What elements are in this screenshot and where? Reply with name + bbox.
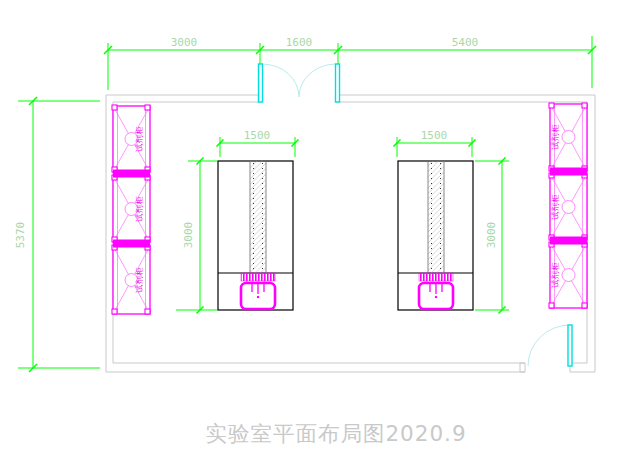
bench-hatched-channel (428, 161, 444, 273)
sink-right (419, 273, 453, 309)
lab-bench-right (398, 161, 473, 310)
cabinet-divider-bar (113, 240, 150, 248)
cabinet-divider-bar (113, 170, 150, 178)
cabinet-cell: 试剂柜 (549, 103, 587, 171)
door-leaf (259, 64, 263, 102)
double-door-top (259, 64, 340, 102)
dim-top-3000-label: 3000 (171, 36, 198, 49)
cabinet-label: 试剂柜 (135, 267, 144, 293)
door-leaf (336, 64, 340, 102)
dim-bench-depth-label: 3000 (485, 222, 498, 249)
cabinet-cell: 试剂柜 (549, 242, 587, 308)
cabinet-label: 试剂柜 (135, 196, 144, 222)
dim-bench-depth-label: 3000 (182, 222, 195, 249)
door-leaf (568, 325, 572, 366)
cabinet-cell: 试剂柜 (112, 175, 150, 242)
lab-bench-left (218, 161, 293, 310)
dim-top-1600-label: 1600 (286, 36, 313, 49)
cabinet-label: 试剂柜 (551, 194, 560, 220)
dimension-top-chain: 3000 1600 5400 (104, 36, 596, 90)
cabinet-divider-bar (550, 237, 587, 245)
cabinet-cell: 试剂柜 (549, 173, 587, 240)
dim-bench-width-label: 1500 (421, 129, 448, 142)
cabinet-divider-bar (550, 168, 587, 176)
cabinet-cell: 试剂柜 (112, 245, 150, 314)
floor-plan-drawing: 试剂柜 试剂柜 试剂柜 (0, 0, 619, 469)
room-walls (106, 95, 595, 372)
sink-left (241, 273, 275, 309)
dim-bench-width-label: 1500 (244, 129, 271, 142)
dim-room-height-label: 5370 (14, 222, 27, 249)
cabinet-cell: 试剂柜 (112, 105, 150, 172)
bench-hatched-channel (250, 161, 266, 273)
sink-drain-grate (419, 273, 453, 281)
dim-top-5400-label: 5400 (452, 36, 479, 49)
reagent-cabinet-column-left: 试剂柜 试剂柜 试剂柜 (112, 105, 150, 314)
dimension-left-wall: 5370 (14, 97, 100, 372)
drawing-title: 实验室平面布局图2020.9 (205, 421, 466, 446)
door-bottom-right (528, 325, 572, 366)
cabinet-label: 试剂柜 (135, 126, 144, 152)
cad-floor-plan-viewport: 试剂柜 试剂柜 试剂柜 (0, 0, 619, 469)
sink-drain-grate (241, 273, 275, 281)
reagent-cabinet-column-right: 试剂柜 试剂柜 试剂柜 (549, 103, 587, 308)
cabinet-label: 试剂柜 (551, 262, 560, 288)
cabinet-label: 试剂柜 (551, 124, 560, 150)
